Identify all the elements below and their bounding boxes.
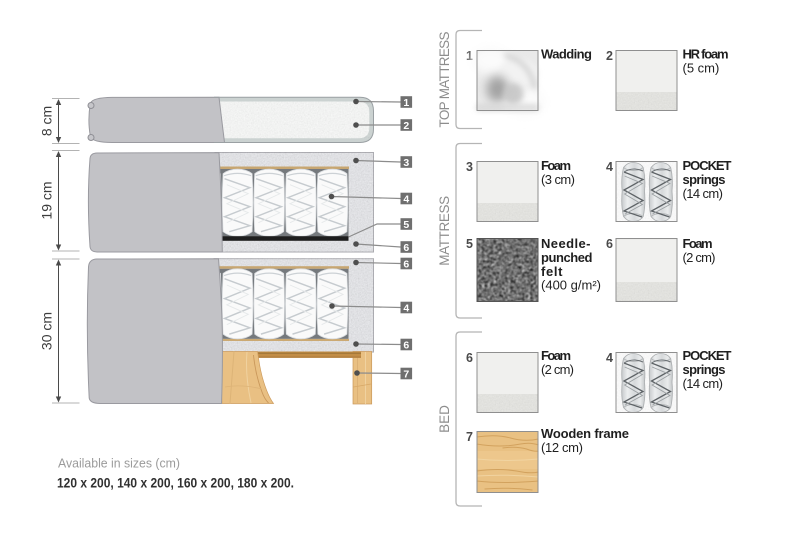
svg-text:6: 6 (466, 351, 473, 365)
svg-text:POCKET: POCKET (683, 158, 732, 173)
svg-text:(14 cm): (14 cm) (683, 186, 724, 201)
svg-text:30 cm: 30 cm (39, 312, 55, 350)
svg-text:19 cm: 19 cm (39, 181, 55, 219)
svg-text:3: 3 (466, 160, 473, 174)
svg-text:TOP MATTRESS: TOP MATTRESS (437, 32, 452, 128)
svg-text:(2 cm): (2 cm) (683, 250, 716, 265)
svg-text:Foam: Foam (541, 348, 571, 363)
svg-text:Wadding: Wadding (541, 47, 592, 62)
svg-text:7: 7 (403, 368, 409, 380)
svg-text:6: 6 (403, 242, 409, 254)
svg-text:2: 2 (606, 49, 613, 63)
svg-text:6: 6 (403, 339, 409, 351)
svg-text:Needle-: Needle- (541, 236, 591, 251)
svg-text:1: 1 (403, 97, 409, 109)
svg-text:4: 4 (403, 193, 409, 205)
svg-text:6: 6 (403, 258, 409, 270)
svg-text:Foam: Foam (683, 236, 713, 251)
svg-text:7: 7 (466, 430, 473, 444)
svg-text:2: 2 (403, 120, 409, 132)
svg-text:Wooden frame: Wooden frame (541, 426, 629, 441)
svg-text:BED: BED (437, 405, 452, 433)
svg-text:springs: springs (683, 362, 726, 377)
svg-text:Foam: Foam (541, 158, 571, 173)
svg-text:5: 5 (403, 219, 409, 231)
svg-text:(12 cm): (12 cm) (541, 440, 583, 455)
svg-text:(5 cm): (5 cm) (683, 61, 720, 76)
svg-text:3: 3 (403, 157, 409, 169)
svg-text:4: 4 (606, 160, 613, 174)
svg-text:(14 cm): (14 cm) (683, 376, 724, 391)
svg-text:springs: springs (683, 172, 726, 187)
svg-text:4: 4 (403, 302, 409, 314)
svg-text:5: 5 (466, 237, 473, 251)
svg-text:120 x 200, 140 x 200, 160 x 20: 120 x 200, 140 x 200, 160 x 200, 180 x 2… (57, 476, 294, 491)
svg-text:HR foam: HR foam (683, 47, 729, 62)
svg-text:POCKET: POCKET (683, 348, 732, 363)
svg-text:punched: punched (541, 250, 593, 265)
svg-text:Available in sizes (cm): Available in sizes (cm) (58, 457, 180, 471)
svg-text:4: 4 (606, 351, 613, 365)
svg-text:(3 cm): (3 cm) (541, 172, 575, 187)
svg-text:8 cm: 8 cm (39, 106, 55, 136)
svg-text:(2 cm): (2 cm) (541, 362, 574, 377)
svg-text:MATTRESS: MATTRESS (437, 196, 452, 266)
svg-text:6: 6 (606, 237, 613, 251)
svg-text:(400 g/m²): (400 g/m²) (541, 278, 601, 293)
